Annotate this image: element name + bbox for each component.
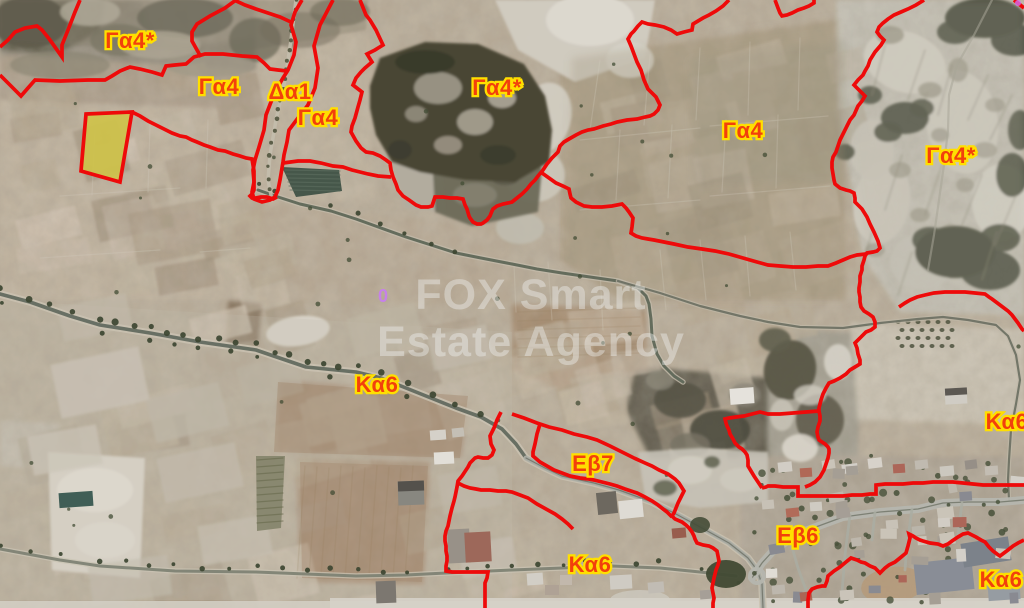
svg-text:Κα6: Κα6	[356, 372, 399, 397]
svg-text:Δα1: Δα1	[268, 79, 311, 104]
svg-text:Γα4*: Γα4*	[926, 143, 976, 168]
svg-text:Estate Agency: Estate Agency	[377, 318, 685, 366]
svg-text:0: 0	[378, 286, 388, 306]
svg-text:Γα4: Γα4	[298, 105, 339, 130]
svg-text:Γα4: Γα4	[723, 118, 764, 143]
svg-text:Γα4*: Γα4*	[105, 28, 155, 53]
svg-text:Γα4: Γα4	[199, 74, 240, 99]
svg-text:Γα4*: Γα4*	[472, 75, 522, 100]
svg-text:Εβ7: Εβ7	[572, 451, 614, 476]
svg-text:Κα6: Κα6	[986, 409, 1024, 434]
svg-text:FOX Smart: FOX Smart	[415, 271, 646, 319]
svg-text:Κα6: Κα6	[569, 552, 612, 577]
svg-text:Κα6: Κα6	[980, 567, 1023, 592]
svg-text:Εβ6: Εβ6	[777, 523, 819, 548]
